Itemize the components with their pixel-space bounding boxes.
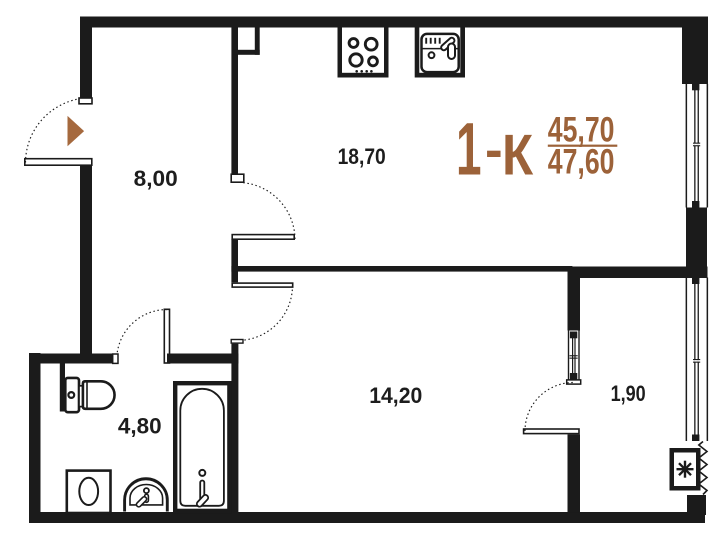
svg-text:4,80: 4,80 [118,414,162,439]
svg-text:1: 1 [456,109,482,192]
svg-text:К: К [502,124,534,187]
svg-text:14,20: 14,20 [369,383,422,408]
svg-text:18,70: 18,70 [338,145,386,169]
svg-text:-: - [485,121,503,180]
svg-text:1,90: 1,90 [611,382,646,406]
svg-text:47,60: 47,60 [548,142,615,181]
svg-text:8,00: 8,00 [134,166,178,191]
